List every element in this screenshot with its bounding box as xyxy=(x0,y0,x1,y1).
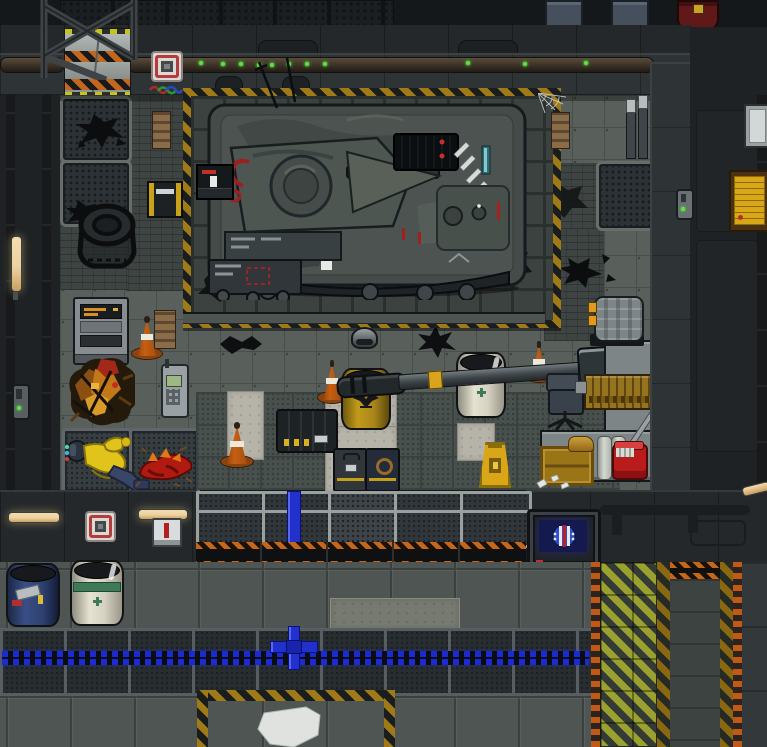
dead-creature[interactable] xyxy=(134,446,192,488)
handheld-radio[interactable] xyxy=(161,364,189,418)
lane-edge-dash xyxy=(733,562,742,747)
reinforced-window[interactable] xyxy=(328,491,400,548)
portable-pump[interactable] xyxy=(588,296,646,346)
chem-drum[interactable] xyxy=(70,560,124,626)
game-viewport xyxy=(0,0,767,747)
wall-conduit xyxy=(690,520,746,546)
platform-console[interactable] xyxy=(196,164,234,200)
intercom-slot xyxy=(164,523,169,538)
vend-text xyxy=(84,313,98,316)
hazard-lane-tiles xyxy=(600,562,657,747)
toolbox-stripe xyxy=(369,478,396,481)
bread-item[interactable] xyxy=(568,436,594,452)
blue-drum[interactable] xyxy=(6,563,60,627)
monitor-icon xyxy=(550,522,578,550)
lane-stripe xyxy=(657,562,670,747)
pipe-joint xyxy=(286,640,302,654)
status-monitor[interactable] xyxy=(527,509,601,569)
wood-planks[interactable] xyxy=(152,111,171,149)
air-alarm[interactable] xyxy=(151,51,183,82)
door-hazard xyxy=(65,79,130,90)
access-button[interactable] xyxy=(676,189,694,220)
reinforced-window[interactable] xyxy=(394,491,466,548)
lane-edge-dash xyxy=(591,562,600,747)
cell-charger[interactable] xyxy=(147,181,183,218)
tank-vehicle[interactable] xyxy=(197,56,537,300)
dome xyxy=(351,327,378,349)
canister-label xyxy=(693,4,704,14)
access-button[interactable] xyxy=(12,384,30,420)
drum-label-red xyxy=(12,600,22,606)
drum-cross xyxy=(93,597,102,606)
console-led xyxy=(202,170,216,174)
charger-rail xyxy=(149,183,154,216)
shell-tips xyxy=(284,439,310,446)
bench-item xyxy=(575,381,587,394)
toolbox-ring xyxy=(376,458,393,475)
toolbox-latch xyxy=(345,464,357,472)
wall-hatch[interactable] xyxy=(744,104,767,148)
lane-floor xyxy=(670,579,720,747)
truss-lattice xyxy=(36,0,142,80)
light-tube xyxy=(8,512,60,523)
sign-glyph-dot xyxy=(493,462,498,469)
traffic-cone[interactable] xyxy=(131,316,163,360)
hazard-frame-right xyxy=(384,690,395,747)
hatch-panel xyxy=(749,109,766,143)
charger-rail xyxy=(176,183,181,216)
ext-panel xyxy=(696,240,758,452)
radio-antenna xyxy=(165,359,169,368)
oil-splat-decal xyxy=(66,104,140,156)
button-slot xyxy=(681,194,686,202)
pump-light xyxy=(588,302,597,313)
vend-screen xyxy=(80,304,122,319)
burnt-wreckage[interactable] xyxy=(63,353,135,429)
chair-legs xyxy=(544,409,586,431)
radio-keys xyxy=(166,389,180,405)
platform-lip xyxy=(183,312,545,324)
intercom-base xyxy=(154,540,180,545)
toolbox-stripe xyxy=(337,478,364,481)
spiderweb-decal xyxy=(538,93,566,114)
traffic-cone[interactable] xyxy=(220,422,254,468)
mop-bucket[interactable] xyxy=(608,408,654,480)
pump-light xyxy=(588,315,597,326)
scrap-decal xyxy=(535,473,571,491)
lane-outer xyxy=(742,562,767,747)
ammo-crate[interactable] xyxy=(276,409,338,453)
sign-handle xyxy=(488,444,502,448)
toolbox-blue[interactable] xyxy=(365,448,400,492)
intercom[interactable] xyxy=(152,518,182,547)
mop-head xyxy=(616,448,634,457)
button-led xyxy=(681,207,685,211)
pipe-cap xyxy=(626,99,636,113)
wood-planks[interactable] xyxy=(551,112,570,149)
wall-conduit xyxy=(600,505,750,515)
posted-notice[interactable] xyxy=(734,176,765,225)
loose-wheel[interactable] xyxy=(76,198,138,274)
toolbox-handle xyxy=(343,453,360,460)
vend-slot xyxy=(80,335,122,347)
button-led xyxy=(17,406,21,410)
wall-conduit xyxy=(612,513,622,535)
hazard-frame-top xyxy=(197,690,395,701)
drum-label-yellow xyxy=(38,595,43,604)
vend-led xyxy=(113,308,118,311)
pipe-cap xyxy=(638,95,648,109)
blue-pipe xyxy=(287,491,301,544)
cannon-band xyxy=(428,370,443,389)
pump-body xyxy=(594,296,644,342)
dome-visor xyxy=(356,339,373,345)
reinforced-window[interactable] xyxy=(196,491,268,548)
reinforced-window[interactable] xyxy=(460,491,532,548)
workbench[interactable] xyxy=(584,374,660,410)
console-button xyxy=(210,176,217,187)
tube-cap xyxy=(13,292,18,300)
lane-cap xyxy=(670,562,720,579)
charger-slot xyxy=(156,189,174,194)
dome-helmet[interactable] xyxy=(351,327,378,350)
marble-tiles xyxy=(330,598,460,630)
latch xyxy=(314,435,328,443)
button-screen xyxy=(16,389,22,399)
cannon-muzzle xyxy=(336,372,407,399)
lane-stripe xyxy=(720,562,733,747)
notice-seal xyxy=(738,215,743,220)
scorch-decal xyxy=(214,332,270,356)
bench-shelf xyxy=(589,396,655,403)
toolbox-gray[interactable] xyxy=(333,448,368,492)
wall-right xyxy=(650,62,692,564)
radio-screen xyxy=(166,375,182,387)
light-tube xyxy=(11,236,22,292)
alarm-core-inner xyxy=(164,64,170,69)
pipe-led xyxy=(584,61,588,65)
drum-band xyxy=(73,582,121,592)
air-alarm[interactable] xyxy=(85,511,116,542)
white-sheet[interactable] xyxy=(252,705,326,747)
hazard-frame-left xyxy=(197,690,208,747)
vend-text xyxy=(84,308,106,311)
vend-panel xyxy=(80,321,122,333)
wet-floor-sign[interactable] xyxy=(479,442,511,488)
console-base xyxy=(198,188,232,198)
